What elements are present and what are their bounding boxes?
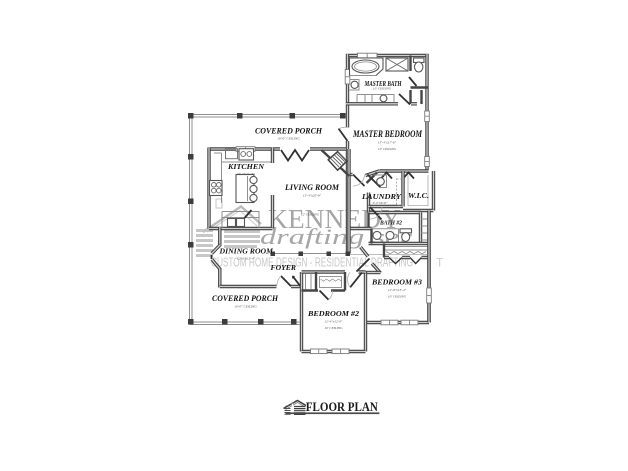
svg-text:BATH #2: BATH #2 xyxy=(379,221,402,227)
svg-text:10'-0" CEILING: 10'-0" CEILING xyxy=(277,137,300,141)
svg-text:W.I.C.: W.I.C. xyxy=(408,193,429,200)
svg-text:6'-0"x6'-8": 6'-0"x6'-8" xyxy=(373,201,388,205)
svg-text:12'-8"x13'-4": 12'-8"x13'-4" xyxy=(388,288,407,292)
svg-text:12'-4"x12'-0": 12'-4"x12'-0" xyxy=(324,320,343,324)
svg-text:12'-0"x11'-4": 12'-0"x11'-4" xyxy=(237,257,256,261)
svg-text:10' CEILING: 10' CEILING xyxy=(324,326,343,330)
svg-text:FOYER: FOYER xyxy=(271,263,297,272)
svg-text:COVERED PORCH: COVERED PORCH xyxy=(212,294,279,303)
svg-text:15'-4"x17'-6": 15'-4"x17'-6" xyxy=(378,141,397,145)
svg-text:12' CEILING: 12' CEILING xyxy=(301,213,320,217)
svg-text:10' CEILING: 10' CEILING xyxy=(378,147,397,151)
svg-text:COVERED PORCH: COVERED PORCH xyxy=(255,127,323,136)
svg-text:10'-0" CEILING: 10'-0" CEILING xyxy=(234,305,257,309)
svg-text:13'-4"x11'-8": 13'-4"x11'-8" xyxy=(237,172,256,176)
svg-text:10' CEILING: 10' CEILING xyxy=(373,87,392,91)
svg-text:DINING ROOM: DINING ROOM xyxy=(219,247,275,256)
svg-text:LAUNDRY: LAUNDRY xyxy=(361,192,403,201)
svg-text:MASTER BEDROOM: MASTER BEDROOM xyxy=(352,130,422,140)
svg-text:KITCHEN: KITCHEN xyxy=(227,162,265,171)
svg-text:15'-4"x20'-8": 15'-4"x20'-8" xyxy=(303,194,322,198)
svg-text:T: T xyxy=(436,256,444,270)
svg-text:BEDROOM #3: BEDROOM #3 xyxy=(371,278,422,287)
svg-text:LIVING ROOM: LIVING ROOM xyxy=(284,182,339,192)
svg-text:10' CEILING: 10' CEILING xyxy=(388,295,407,299)
svg-text:BEDROOM #2: BEDROOM #2 xyxy=(307,309,359,318)
svg-text:FLOOR PLAN: FLOOR PLAN xyxy=(306,399,379,414)
